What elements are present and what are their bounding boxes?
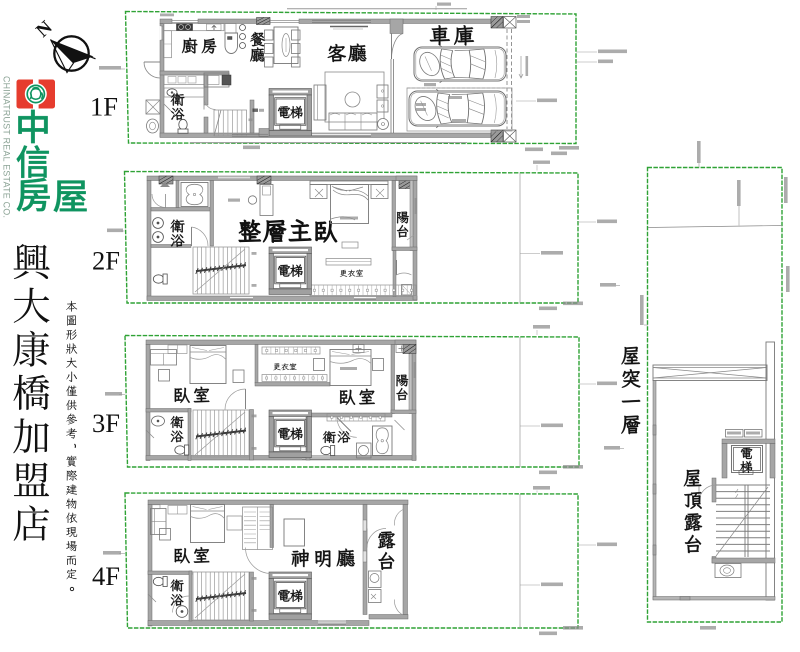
svg-text:2F: 2F	[92, 246, 120, 276]
svg-text:1F: 1F	[90, 92, 118, 122]
svg-text:4F: 4F	[92, 561, 120, 591]
svg-text:CHINATRUST REAL ESTATE CO.: CHINATRUST REAL ESTATE CO.	[2, 76, 12, 218]
svg-text:3F: 3F	[92, 408, 120, 438]
